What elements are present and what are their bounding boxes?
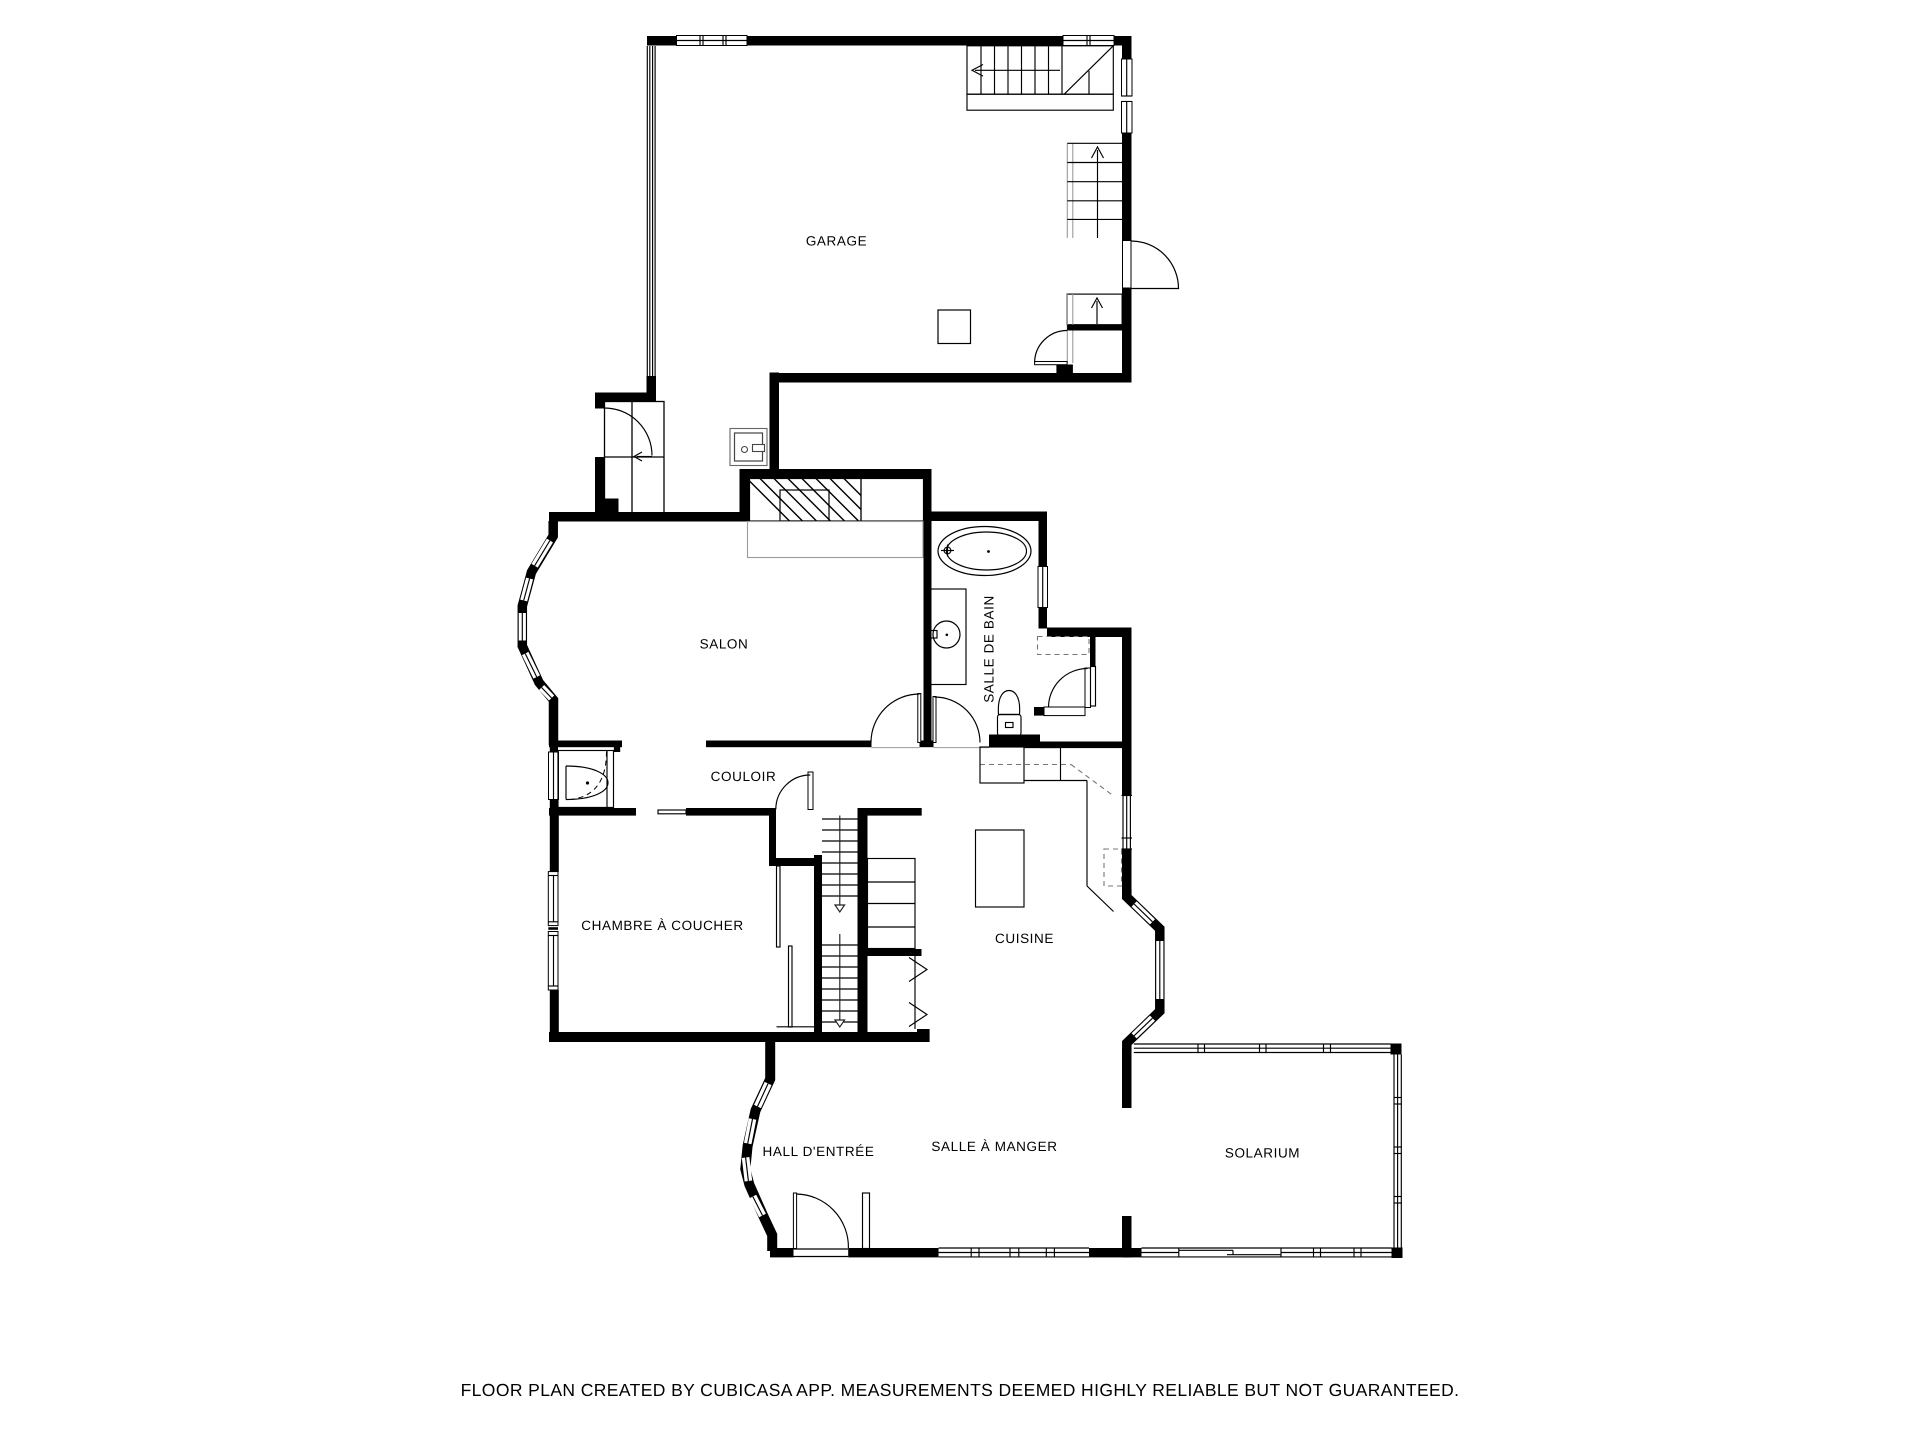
svg-text:HALL D'ENTRÉE: HALL D'ENTRÉE [763,1144,875,1159]
svg-text:SALLE À MANGER: SALLE À MANGER [931,1139,1057,1154]
svg-text:CUISINE: CUISINE [995,931,1054,946]
svg-text:FLOOR PLAN CREATED BY CUBICASA: FLOOR PLAN CREATED BY CUBICASA APP. MEAS… [461,1380,1460,1400]
svg-text:COULOIR: COULOIR [711,769,777,784]
svg-text:SALLE DE BAIN: SALLE DE BAIN [982,595,997,703]
svg-text:SALON: SALON [700,637,749,652]
svg-text:SOLARIUM: SOLARIUM [1225,1146,1300,1161]
svg-text:CHAMBRE À COUCHER: CHAMBRE À COUCHER [581,918,743,933]
svg-text:GARAGE: GARAGE [806,234,867,249]
